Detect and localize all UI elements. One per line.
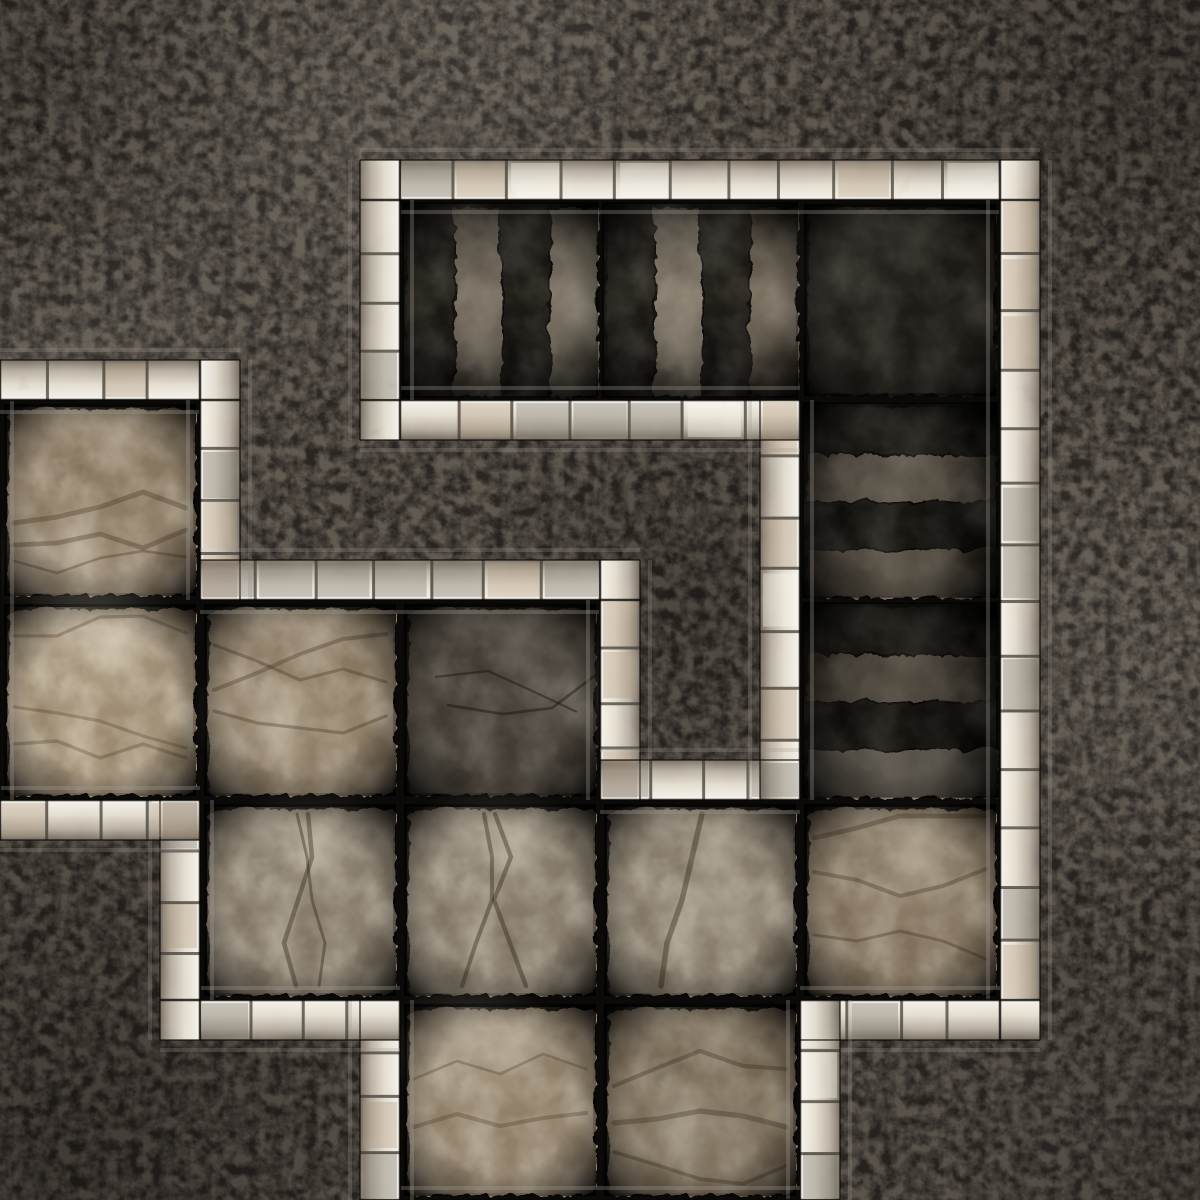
wall-brick-tint [1003,545,1037,598]
wall-brick-tint [1003,659,1037,712]
wall-brick-tint [1003,202,1037,255]
wall-brick-tint [752,763,798,797]
wall-brick-tint [316,563,369,597]
wall-brick-tint [803,1052,837,1098]
wall-brick-tint [259,563,312,597]
wall-brick-tint [763,402,797,455]
wall-brick-tint [545,563,598,597]
wall-brick-tint [163,902,197,948]
east-corridor-stairs-b [802,602,998,798]
wall-brick-tint [602,763,648,797]
wall-brick-tint [838,163,889,197]
wall-brick-tint [459,403,512,437]
wall-brick-tint [511,163,562,197]
wall-brick-tint [203,452,237,498]
wall-brick-tint [763,573,797,626]
wall-brick-tint [488,563,541,597]
south-hall-floor-a [204,780,399,996]
south-hall-floor-c [604,804,803,996]
wall-brick-tint [1003,888,1037,941]
wall-brick-tint [516,403,569,437]
wall-brick-tint [402,163,453,197]
wall-brick-tint [947,163,998,197]
wall-brick-tint [2,803,48,837]
dungeon-map [0,0,1200,1200]
wall-brick-tint [202,563,255,597]
wall-brick-tint [202,1003,248,1037]
wall-brick-tint [620,163,671,197]
south-hall-floor-d [803,796,1004,997]
wall-brick-tint [803,1152,837,1198]
wall-brick-tint [1003,316,1037,369]
wall-brick-tint [373,563,426,597]
wall-brick-tint [603,602,637,648]
wall-brick-tint [573,403,626,437]
wall-brick-tint [603,652,637,698]
wall-brick-tint [457,163,508,197]
south-hall-floor-e [383,975,597,1197]
dungeon-map-canvas [0,0,1200,1200]
wall-brick-tint [431,563,484,597]
wall-brick-tint [763,688,797,741]
west-room-floor-b [4,568,196,796]
wall-brick-tint [363,1152,397,1198]
wall-brick-tint [203,502,237,548]
wall-brick-tint [1003,488,1037,541]
wall-brick-tint [152,803,198,837]
wall-brick-tint [1003,259,1037,312]
west-room-floor-c [191,604,396,796]
east-corridor-stairs-a [802,402,998,598]
wall-brick-tint [763,516,797,569]
wall-brick-tint [688,403,741,437]
wall-brick-tint [363,352,397,398]
wall-brick-tint [631,403,684,437]
wall-brick-tint [102,363,148,397]
wall-brick-tint [1003,945,1037,998]
stairs-upper-west [402,202,598,398]
wall-brick-tint [852,1003,898,1037]
wall-brick-tint [363,1102,397,1148]
south-hall-floor-b [404,776,596,996]
south-hall-floor-f [603,1003,797,1197]
